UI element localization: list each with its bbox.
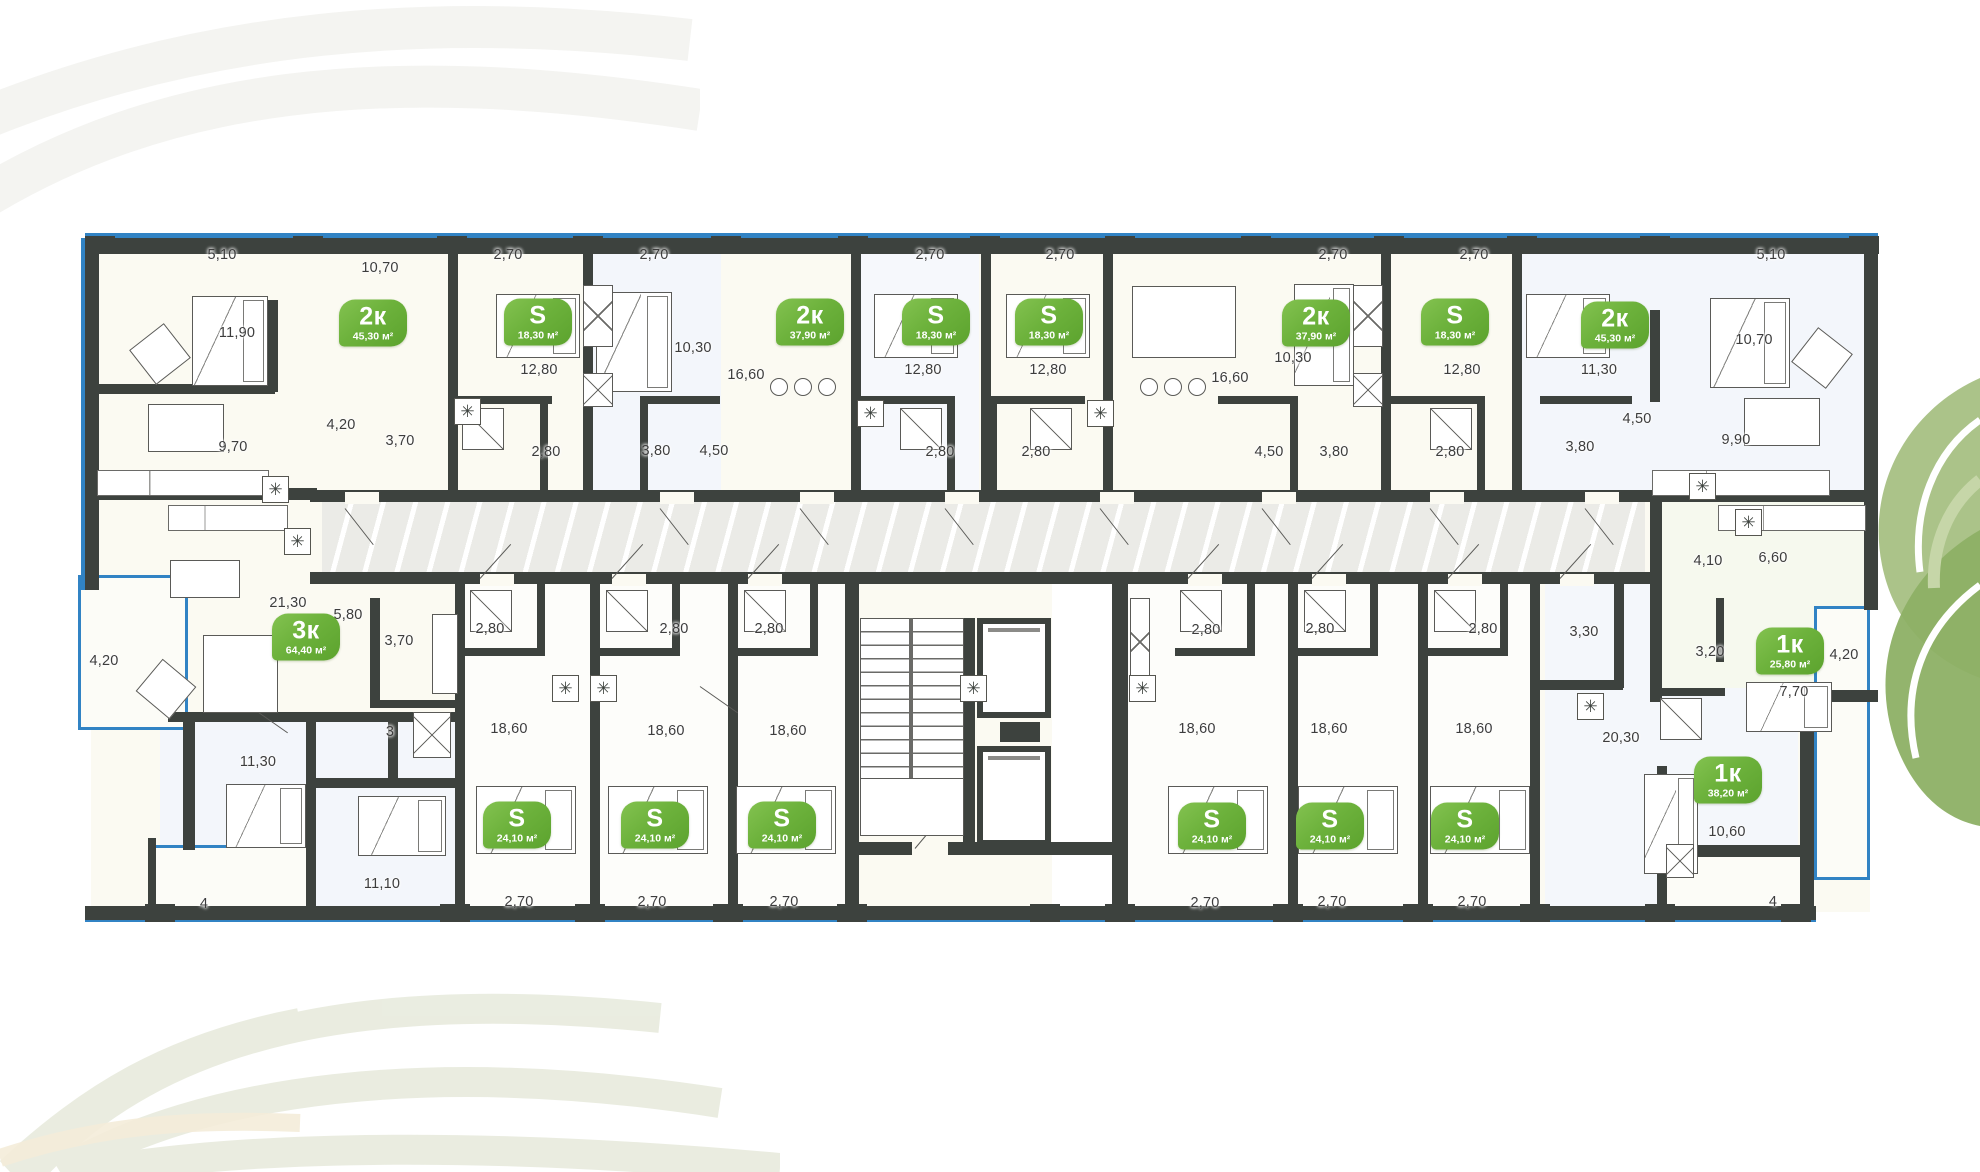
dimension-label: 2,80 <box>475 621 504 637</box>
wall <box>1247 584 1255 656</box>
window-pier <box>1241 236 1271 254</box>
bar-stool-icon <box>1188 378 1206 396</box>
dimension-label: 11,10 <box>364 876 400 892</box>
apartment-type-label: 2к <box>1581 306 1649 331</box>
dimension-label: 2,80 <box>754 621 783 637</box>
apartment-badge[interactable]: 1к38,20 м² <box>1694 757 1762 804</box>
apartment-area-label: 38,20 м² <box>1694 788 1762 799</box>
window-pier <box>713 904 743 922</box>
dimension-label: 2,70 <box>639 247 668 263</box>
wall <box>85 238 99 590</box>
dimension-label: 10,70 <box>1735 332 1772 348</box>
door-opening <box>345 492 379 504</box>
door-opening <box>480 574 514 586</box>
dimension-label: 3,30 <box>1569 624 1598 640</box>
window-pier <box>1374 236 1404 254</box>
apartment-type-label: 2к <box>1282 304 1350 329</box>
dimension-label: 10,30 <box>1274 350 1311 366</box>
appliance-snowflake-icon: ✳ <box>1735 509 1762 536</box>
wardrobe-icon <box>1666 844 1694 878</box>
dimension-label: 4,20 <box>89 653 118 669</box>
kitchen-counter-icon <box>168 505 288 531</box>
wall <box>1535 680 1623 690</box>
wall <box>1512 252 1522 496</box>
window-pier <box>711 236 741 254</box>
wall <box>989 404 997 492</box>
blanket-fold-line <box>193 297 237 385</box>
apartment-area-label: 64,40 м² <box>272 645 340 656</box>
wall <box>600 648 680 656</box>
apartment-area-label: 45,30 м² <box>339 331 407 342</box>
dimension-label: 4,20 <box>326 417 355 433</box>
apartment-badge[interactable]: S24,10 м² <box>1431 803 1499 850</box>
appliance-snowflake-icon: ✳ <box>1129 675 1156 702</box>
apartment-badge[interactable]: S24,10 м² <box>748 802 816 849</box>
door-opening <box>1560 574 1594 586</box>
apartment-type-label: 2к <box>339 304 407 329</box>
apartment-area-label: 24,10 м² <box>1296 834 1364 845</box>
window-pier <box>293 236 323 254</box>
window-pier <box>85 236 115 254</box>
appliance-snowflake-icon: ✳ <box>857 400 884 427</box>
wall <box>85 906 1816 920</box>
dimension-label: 2,80 <box>925 444 954 460</box>
wall <box>810 584 818 656</box>
apartment-badge[interactable]: S18,30 м² <box>902 299 970 346</box>
window-pier <box>1507 236 1537 254</box>
appliance-snowflake-icon: ✳ <box>590 675 617 702</box>
dimension-label: 2,70 <box>1459 247 1488 263</box>
dimension-label: 4,50 <box>1622 411 1651 427</box>
table-icon <box>148 404 224 452</box>
dimension-label: 3,80 <box>1319 444 1348 460</box>
dimension-label: 2,70 <box>1457 894 1486 910</box>
blanket-fold-line <box>1527 295 1576 357</box>
apartment-area-label: 18,30 м² <box>1015 330 1083 341</box>
dimension-label: 2,80 <box>659 621 688 637</box>
window-pier <box>1849 236 1879 254</box>
door-opening <box>800 492 834 504</box>
dimension-label: 10,60 <box>1708 824 1745 840</box>
dimension-label: 2,80 <box>1435 444 1464 460</box>
wall <box>1175 648 1255 656</box>
dimension-label: 5,10 <box>1756 247 1785 263</box>
pillow-icon <box>243 300 264 382</box>
apartment-area-label: 37,90 м² <box>776 330 844 341</box>
wall <box>728 584 738 906</box>
apartment-area-label: 18,30 м² <box>1421 330 1489 341</box>
wall <box>1418 584 1428 906</box>
dimension-label: 4 <box>1769 894 1777 910</box>
appliance-snowflake-icon: ✳ <box>284 528 311 555</box>
window-pier <box>145 904 175 922</box>
dimension-label: 12,80 <box>904 362 941 378</box>
window-pier <box>1640 236 1670 254</box>
wall <box>448 252 458 496</box>
dimension-label: 3,80 <box>1565 439 1594 455</box>
apartment-type-label: S <box>902 303 970 328</box>
dimension-label: 21,30 <box>269 595 306 611</box>
elevator-divider-wall <box>1000 722 1040 742</box>
apartment-type-label: S <box>483 806 551 831</box>
window-pier <box>1030 904 1060 922</box>
apartment-badge[interactable]: S18,30 м² <box>1015 299 1083 346</box>
window-pier <box>1645 904 1675 922</box>
window-pier <box>1520 904 1550 922</box>
dimension-label: 10,30 <box>674 340 711 356</box>
apartment-type-label: 2к <box>776 303 844 328</box>
wall <box>1655 688 1725 696</box>
dimension-label: 20,30 <box>1602 730 1639 746</box>
window-pier <box>1105 904 1135 922</box>
apartment-badge[interactable]: S24,10 м² <box>1178 803 1246 850</box>
window-pier <box>838 236 868 254</box>
apartment-area-label: 25,80 м² <box>1756 659 1824 670</box>
window-pier <box>437 236 467 254</box>
shower-icon <box>1660 698 1702 740</box>
dimension-label: 3,70 <box>385 433 414 449</box>
kitchen-counter-icon <box>97 470 269 496</box>
stair-landing <box>860 778 964 836</box>
apartment-area-label: 37,90 м² <box>1282 331 1350 342</box>
wall <box>1103 252 1113 496</box>
bar-stool-icon <box>794 378 812 396</box>
bar-stool-icon <box>770 378 788 396</box>
shower-icon <box>606 590 648 632</box>
sofa-icon <box>203 635 278 713</box>
apartment-area-label: 45,30 м² <box>1581 333 1649 344</box>
wall <box>672 584 680 656</box>
wardrobe-icon <box>583 373 613 407</box>
table-icon <box>170 560 240 598</box>
window-pier <box>1105 236 1135 254</box>
appliance-snowflake-icon: ✳ <box>960 675 987 702</box>
elevator[interactable] <box>977 618 1051 718</box>
door-opening <box>1448 574 1482 586</box>
dimension-label: 11,30 <box>1581 362 1617 378</box>
stair-stringer <box>909 618 913 778</box>
door-opening <box>1585 492 1619 504</box>
wall <box>989 396 1085 404</box>
wall <box>1290 396 1298 492</box>
corridor-hatch <box>322 502 1645 572</box>
wall <box>306 722 316 906</box>
blanket-fold-line <box>227 785 274 847</box>
window-pier <box>1273 904 1303 922</box>
pillow-icon <box>1499 790 1526 850</box>
wall <box>268 300 278 392</box>
wardrobe-icon <box>1130 598 1150 686</box>
door-opening <box>1312 574 1346 586</box>
wall <box>465 648 545 656</box>
window-pier <box>837 904 867 922</box>
wall <box>1540 396 1632 404</box>
wall <box>1477 404 1485 492</box>
door-opening <box>1100 492 1134 504</box>
wall <box>148 838 156 910</box>
dimension-label: 2,80 <box>1021 444 1050 460</box>
dimension-label: 18,60 <box>1178 721 1215 737</box>
wall <box>1650 502 1662 702</box>
wall <box>1530 584 1540 906</box>
door-opening <box>748 574 782 586</box>
apartment-type-label: S <box>1296 807 1364 832</box>
dimension-label: 2,80 <box>1191 622 1220 638</box>
apartment-area-label: 24,10 м² <box>1178 834 1246 845</box>
wall <box>1500 584 1508 656</box>
door-opening <box>612 574 646 586</box>
dimension-label: 2,70 <box>915 247 944 263</box>
dimension-label: 3,80 <box>641 443 670 459</box>
dimension-label: 10,70 <box>361 260 398 276</box>
dimension-label: 16,60 <box>727 367 764 383</box>
pillow-icon <box>1367 790 1394 850</box>
appliance-snowflake-icon: ✳ <box>1087 400 1114 427</box>
dimension-label: 12,80 <box>1029 362 1066 378</box>
dimension-label: 9,70 <box>218 439 247 455</box>
appliance-snowflake-icon: ✳ <box>1689 473 1716 500</box>
door-opening <box>1430 492 1464 504</box>
table-icon <box>1744 398 1820 446</box>
wardrobe-icon <box>1353 373 1383 407</box>
wall <box>388 712 398 784</box>
apartment-badge[interactable]: 2к37,90 м² <box>776 299 844 346</box>
appliance-snowflake-icon: ✳ <box>454 398 481 425</box>
apartment-type-label: 1к <box>1756 632 1824 657</box>
apartment-badge[interactable]: S24,10 м² <box>1296 803 1364 850</box>
window-pier <box>1403 904 1433 922</box>
wall <box>1428 648 1508 656</box>
apartment-badge[interactable]: S24,10 м² <box>483 802 551 849</box>
door-opening <box>1262 492 1296 504</box>
dimension-label: 9,90 <box>1721 432 1750 448</box>
dimension-label: 18,60 <box>1310 721 1347 737</box>
dimension-label: 11,30 <box>240 754 276 770</box>
blanket-fold-line <box>359 797 411 855</box>
bed-icon <box>192 296 268 386</box>
wall <box>183 718 195 850</box>
pillow-icon <box>647 296 668 388</box>
wall <box>537 584 545 656</box>
window-pier <box>1781 904 1811 922</box>
dimension-label: 2,70 <box>1317 894 1346 910</box>
apartment-badge[interactable]: 2к45,30 м² <box>339 300 407 347</box>
window-pier <box>575 904 605 922</box>
elevator-door <box>988 756 1040 760</box>
wall <box>851 252 861 496</box>
sofa-icon <box>1132 286 1236 358</box>
dimension-label: 2,80 <box>531 444 560 460</box>
floorplan-canvas: ✳✳✳✳✳✳✳✳✳✳✳✳ 5,1010,7011,904,203,709,702… <box>0 0 1980 1172</box>
apartment-badge[interactable]: 2к37,90 м² <box>1282 300 1350 347</box>
elevator-door <box>988 628 1040 632</box>
dimension-label: 2,70 <box>1190 895 1219 911</box>
pillow-icon <box>280 788 302 844</box>
wall <box>370 598 380 706</box>
dimension-label: 4,10 <box>1693 553 1722 569</box>
apartment-type-label: S <box>1015 303 1083 328</box>
dimension-label: 3,70 <box>384 633 413 649</box>
dimension-label: 18,60 <box>647 723 684 739</box>
dimension-label: 3 <box>386 724 394 740</box>
apartment-badge[interactable]: 2к45,30 м² <box>1581 302 1649 349</box>
dimension-label: 18,60 <box>490 721 527 737</box>
room-fill <box>465 584 845 906</box>
dimension-label: 11,90 <box>219 325 255 341</box>
apartment-type-label: S <box>504 303 572 328</box>
balcony-outline <box>150 845 314 913</box>
apartment-area-label: 24,10 м² <box>483 833 551 844</box>
dimension-label: 18,60 <box>1455 721 1492 737</box>
apartment-badge[interactable]: S24,10 м² <box>621 802 689 849</box>
bar-stool-icon <box>1164 378 1182 396</box>
door-opening <box>660 492 694 504</box>
wall <box>1298 648 1378 656</box>
wall <box>738 648 818 656</box>
apartment-type-label: S <box>1421 303 1489 328</box>
kitchen-counter-icon <box>1652 470 1830 496</box>
dimension-label: 3,20 <box>1695 644 1724 660</box>
bar-stool-icon <box>818 378 836 396</box>
apartment-type-label: S <box>621 806 689 831</box>
wall <box>963 618 975 848</box>
wall <box>1864 238 1878 610</box>
dimension-label: 4,20 <box>1829 647 1858 663</box>
dimension-label: 2,80 <box>1468 621 1497 637</box>
bed-icon <box>358 796 446 856</box>
window-pier <box>573 236 603 254</box>
appliance-snowflake-icon: ✳ <box>552 675 579 702</box>
dimension-label: 2,70 <box>769 894 798 910</box>
apartment-type-label: S <box>1178 807 1246 832</box>
wall <box>590 584 600 906</box>
dimension-label: 18,60 <box>769 723 806 739</box>
wall <box>1370 584 1378 656</box>
apartment-area-label: 24,10 м² <box>748 833 816 844</box>
wall <box>312 778 457 788</box>
apartment-type-label: S <box>1431 807 1499 832</box>
wall <box>1389 396 1485 404</box>
wall <box>1650 310 1660 402</box>
dimension-label: 2,70 <box>1045 247 1074 263</box>
wall <box>648 396 720 404</box>
dimension-label: 7,70 <box>1779 684 1808 700</box>
apartment-type-label: S <box>748 806 816 831</box>
wall <box>1614 584 1624 688</box>
apartment-type-label: 1к <box>1694 761 1762 786</box>
room-fill <box>1052 584 1112 906</box>
apartment-badge[interactable]: S18,30 м² <box>504 299 572 346</box>
wardrobe-icon <box>413 712 451 758</box>
apartment-area-label: 18,30 м² <box>902 330 970 341</box>
dimension-label: 2,80 <box>1305 621 1334 637</box>
apartment-type-label: 3к <box>272 618 340 643</box>
door-opening <box>1188 574 1222 586</box>
dimension-label: 2,70 <box>1318 247 1347 263</box>
wardrobe-icon <box>1353 285 1383 347</box>
floor-plan: ✳✳✳✳✳✳✳✳✳✳✳✳ 5,1010,7011,904,203,709,702… <box>0 0 1980 1172</box>
dimension-label: 2,70 <box>504 894 533 910</box>
dimension-label: 2,70 <box>493 247 522 263</box>
window-pier <box>970 236 1000 254</box>
dimension-label: 4,50 <box>699 443 728 459</box>
dimension-label: 12,80 <box>520 362 557 378</box>
wall <box>1112 584 1128 906</box>
apartment-area-label: 24,10 м² <box>1431 834 1499 845</box>
dimension-label: 4 <box>200 896 208 912</box>
appliance-snowflake-icon: ✳ <box>262 476 289 503</box>
wardrobe-icon <box>583 285 613 347</box>
wall <box>1218 396 1298 404</box>
window-pier <box>440 904 470 922</box>
bar-stool-icon <box>1140 378 1158 396</box>
apartment-area-label: 24,10 м² <box>621 833 689 844</box>
pillow-icon <box>418 800 442 852</box>
apartment-area-label: 18,30 м² <box>504 330 572 341</box>
dimension-label: 2,70 <box>637 894 666 910</box>
wall <box>370 700 462 708</box>
appliance-snowflake-icon: ✳ <box>1577 693 1604 720</box>
dimension-label: 6,60 <box>1758 550 1787 566</box>
apartment-badge[interactable]: 1к25,80 м² <box>1756 628 1824 675</box>
wall <box>1288 584 1298 906</box>
dimension-label: 5,10 <box>207 247 236 263</box>
apartment-badge[interactable]: 3к64,40 м² <box>272 614 340 661</box>
elevator[interactable] <box>977 746 1051 846</box>
sofa-icon <box>432 614 458 694</box>
bed-icon <box>226 784 306 848</box>
apartment-badge[interactable]: S18,30 м² <box>1421 299 1489 346</box>
wall <box>852 842 912 855</box>
wall <box>845 584 859 906</box>
door-opening <box>945 492 979 504</box>
dimension-label: 4,50 <box>1254 444 1283 460</box>
dimension-label: 12,80 <box>1443 362 1480 378</box>
dimension-label: 16,60 <box>1211 370 1248 386</box>
